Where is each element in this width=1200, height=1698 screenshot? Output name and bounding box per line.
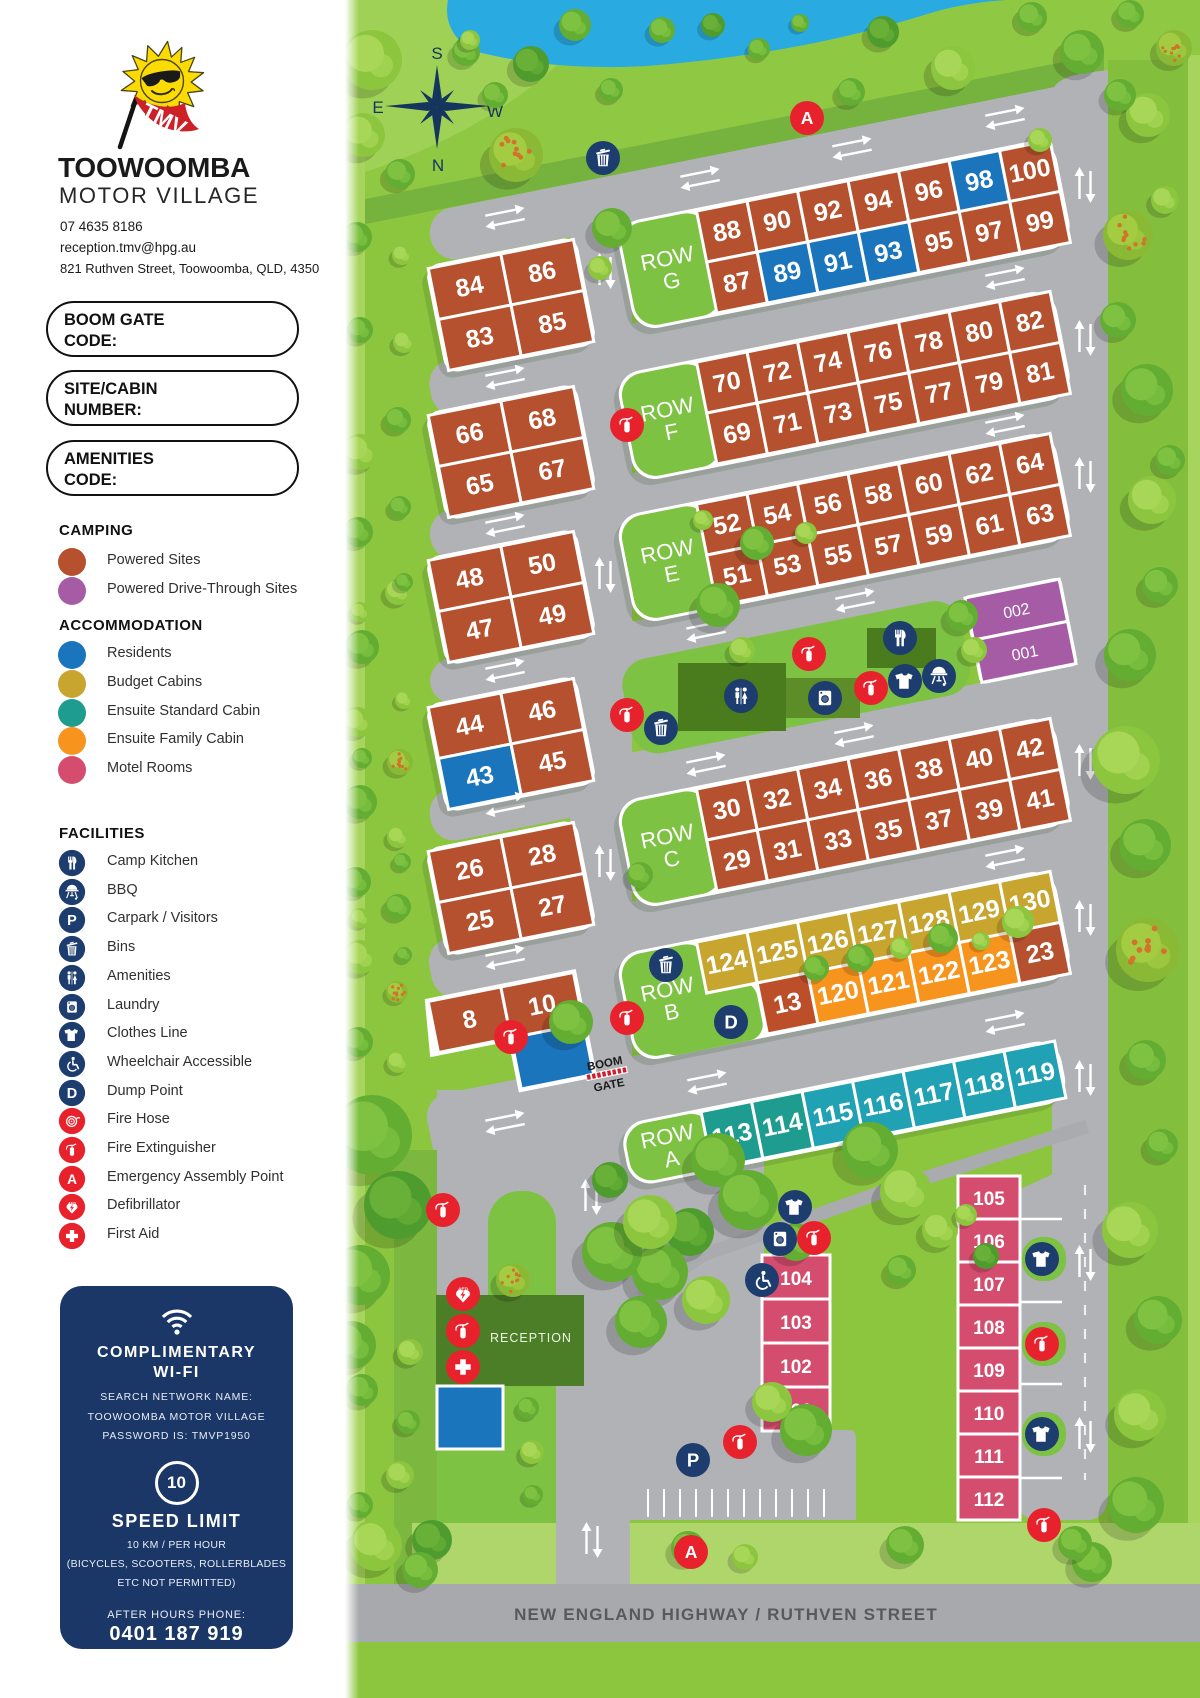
svg-text:26: 26: [453, 853, 486, 886]
svg-text:28: 28: [526, 839, 559, 872]
svg-text:33: 33: [822, 824, 855, 857]
svg-text:97: 97: [973, 216, 1006, 249]
svg-text:32: 32: [761, 783, 794, 816]
svg-text:35: 35: [872, 814, 905, 847]
svg-text:47: 47: [463, 613, 496, 646]
svg-text:54: 54: [761, 498, 794, 531]
svg-text:56: 56: [812, 488, 845, 521]
svg-text:42: 42: [1014, 733, 1047, 766]
svg-text:13: 13: [771, 987, 804, 1020]
svg-text:41: 41: [1024, 783, 1057, 816]
svg-text:74: 74: [812, 346, 845, 379]
svg-text:76: 76: [862, 336, 895, 369]
svg-text:103: 103: [780, 1313, 812, 1334]
svg-text:88: 88: [711, 215, 744, 248]
svg-text:E: E: [372, 98, 383, 117]
svg-text:63: 63: [1024, 498, 1057, 531]
svg-text:59: 59: [923, 519, 956, 552]
svg-text:78: 78: [913, 326, 946, 359]
svg-text:80: 80: [963, 316, 996, 349]
svg-text:67: 67: [536, 454, 569, 487]
svg-text:66: 66: [453, 417, 486, 450]
svg-text:49: 49: [536, 599, 569, 632]
svg-text:82: 82: [1014, 306, 1047, 339]
svg-text:102: 102: [780, 1357, 812, 1378]
svg-text:40: 40: [963, 743, 996, 776]
svg-text:71: 71: [771, 407, 804, 440]
svg-text:73: 73: [822, 397, 855, 430]
svg-text:108: 108: [973, 1318, 1005, 1339]
svg-text:68: 68: [526, 403, 559, 436]
svg-text:98: 98: [963, 165, 996, 198]
svg-text:105: 105: [973, 1189, 1005, 1210]
svg-text:62: 62: [963, 458, 996, 491]
svg-text:60: 60: [913, 468, 946, 501]
svg-text:58: 58: [862, 478, 895, 511]
svg-text:D: D: [724, 1012, 737, 1033]
svg-text:99: 99: [1024, 205, 1057, 238]
svg-text:75: 75: [872, 387, 905, 420]
svg-text:NEW ENGLAND HIGHWAY / RUTHVEN: NEW ENGLAND HIGHWAY / RUTHVEN STREET: [514, 1605, 938, 1624]
svg-text:D: D: [67, 1086, 77, 1102]
svg-text:P: P: [67, 914, 77, 930]
svg-text:96: 96: [913, 175, 946, 208]
svg-text:109: 109: [973, 1361, 1005, 1382]
svg-text:93: 93: [872, 236, 905, 269]
svg-text:65: 65: [463, 468, 496, 501]
svg-text:94: 94: [862, 185, 895, 218]
svg-text:45: 45: [536, 746, 569, 779]
svg-text:77: 77: [923, 377, 956, 410]
svg-text:57: 57: [872, 529, 905, 562]
svg-text:37: 37: [923, 804, 956, 837]
svg-text:52: 52: [711, 508, 744, 541]
svg-text:43: 43: [463, 760, 496, 793]
svg-text:46: 46: [526, 695, 559, 728]
svg-text:39: 39: [973, 794, 1006, 827]
svg-text:79: 79: [973, 367, 1006, 400]
svg-text:48: 48: [453, 562, 486, 595]
svg-text:27: 27: [536, 890, 569, 923]
svg-text:30: 30: [711, 793, 744, 826]
svg-text:92: 92: [812, 195, 845, 228]
svg-text:RECEPTION: RECEPTION: [490, 1331, 572, 1345]
svg-text:23: 23: [1024, 936, 1057, 969]
svg-text:31: 31: [771, 834, 804, 867]
svg-text:95: 95: [923, 226, 956, 259]
svg-text:112: 112: [974, 1490, 1005, 1511]
svg-text:A: A: [801, 108, 814, 128]
svg-text:110: 110: [974, 1404, 1005, 1425]
svg-text:64: 64: [1014, 447, 1047, 480]
svg-text:87: 87: [721, 266, 754, 299]
svg-text:107: 107: [973, 1275, 1005, 1296]
svg-text:89: 89: [771, 256, 804, 289]
svg-text:25: 25: [463, 904, 496, 937]
svg-text:50: 50: [526, 548, 559, 581]
svg-text:70: 70: [711, 366, 744, 399]
svg-text:84: 84: [453, 270, 486, 303]
svg-text:55: 55: [822, 539, 855, 572]
svg-text:P: P: [687, 1450, 699, 1471]
svg-text:A: A: [67, 1172, 77, 1187]
svg-text:N: N: [432, 156, 444, 175]
svg-text:38: 38: [913, 753, 946, 786]
svg-text:111: 111: [974, 1447, 1004, 1468]
svg-text:91: 91: [822, 246, 855, 279]
svg-text:90: 90: [761, 205, 794, 238]
svg-text:34: 34: [812, 773, 845, 806]
svg-text:29: 29: [721, 844, 754, 877]
svg-text:81: 81: [1024, 356, 1057, 389]
svg-text:104: 104: [780, 1269, 812, 1290]
svg-text:53: 53: [771, 549, 804, 582]
svg-text:69: 69: [721, 417, 754, 450]
svg-text:85: 85: [536, 307, 569, 340]
svg-text:36: 36: [862, 763, 895, 796]
svg-text:A: A: [685, 1542, 698, 1562]
svg-text:72: 72: [761, 356, 794, 389]
svg-text:83: 83: [463, 321, 496, 354]
svg-text:61: 61: [973, 509, 1006, 542]
svg-text:44: 44: [453, 709, 486, 742]
svg-text:86: 86: [526, 256, 559, 289]
svg-text:S: S: [431, 44, 442, 63]
